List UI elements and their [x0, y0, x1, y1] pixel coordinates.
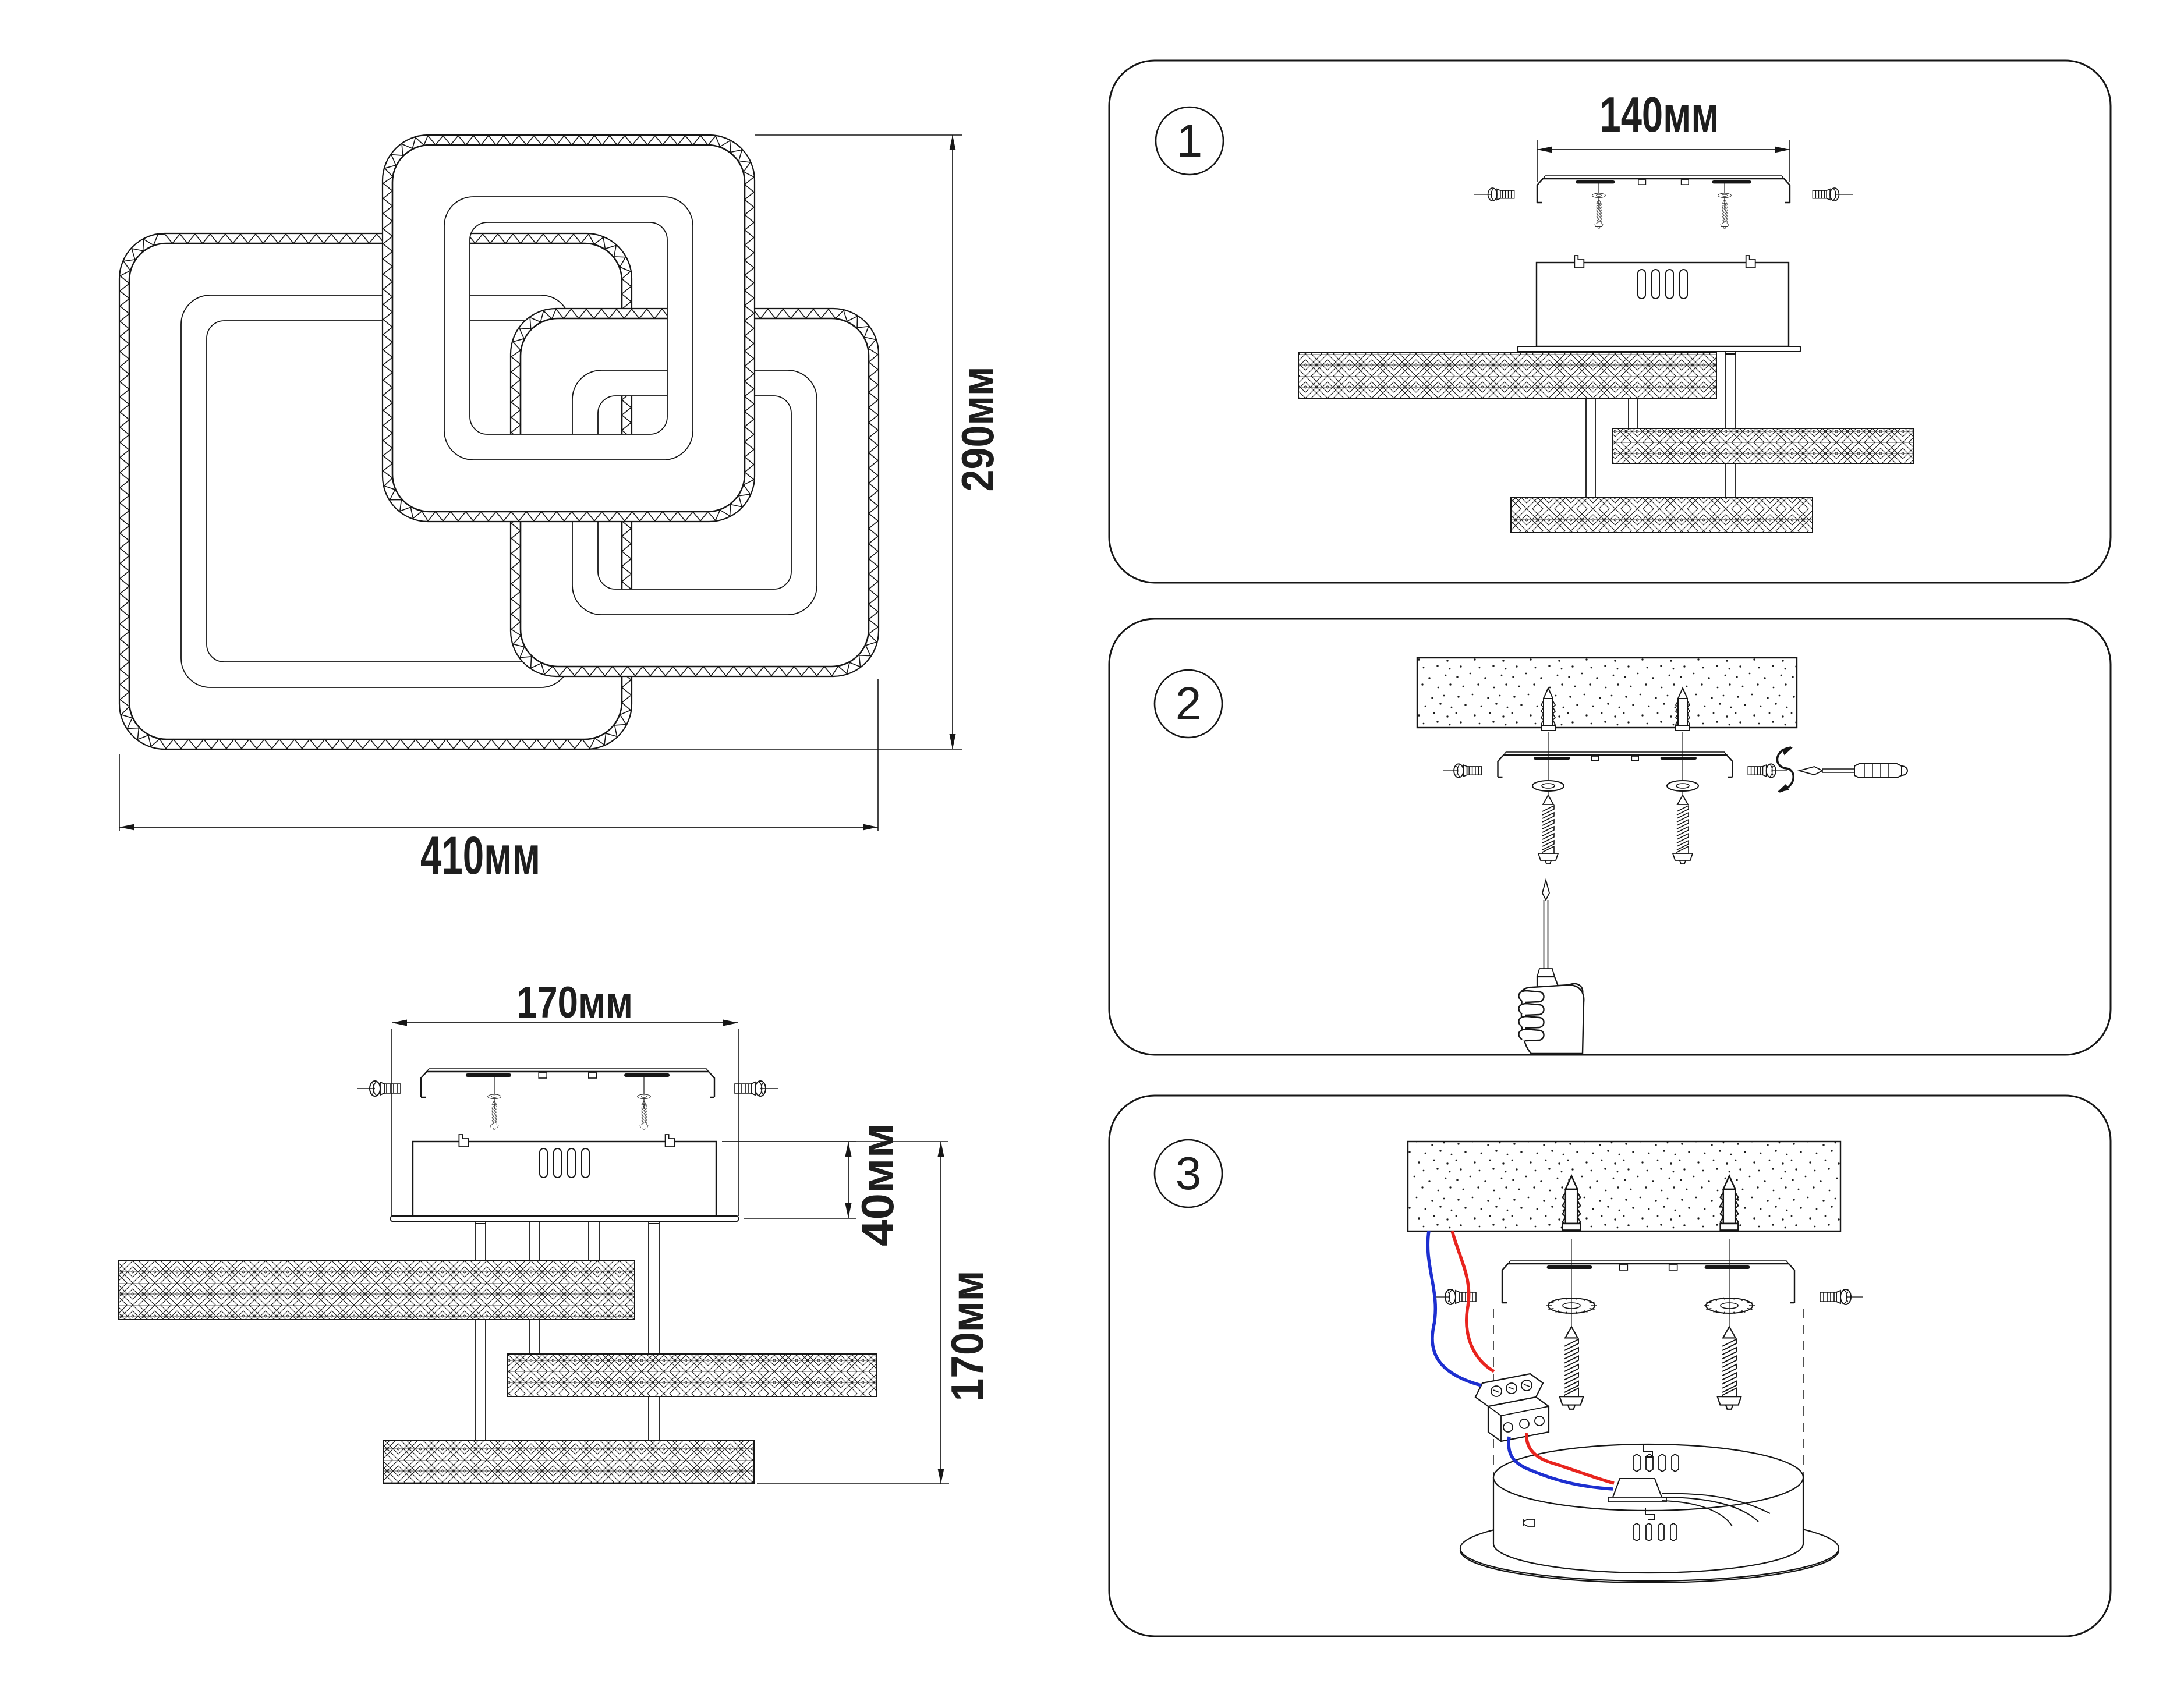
svg-text:410мм: 410мм [420, 826, 540, 885]
svg-text:170мм: 170мм [941, 1271, 993, 1402]
svg-text:140мм: 140мм [1600, 87, 1719, 143]
svg-text:290мм: 290мм [952, 367, 1003, 492]
svg-text:2: 2 [1176, 678, 1202, 729]
svg-text:1: 1 [1177, 115, 1203, 166]
svg-text:170мм: 170мм [516, 978, 633, 1027]
svg-text:3: 3 [1176, 1147, 1202, 1199]
svg-text:40мм: 40мм [852, 1123, 903, 1246]
